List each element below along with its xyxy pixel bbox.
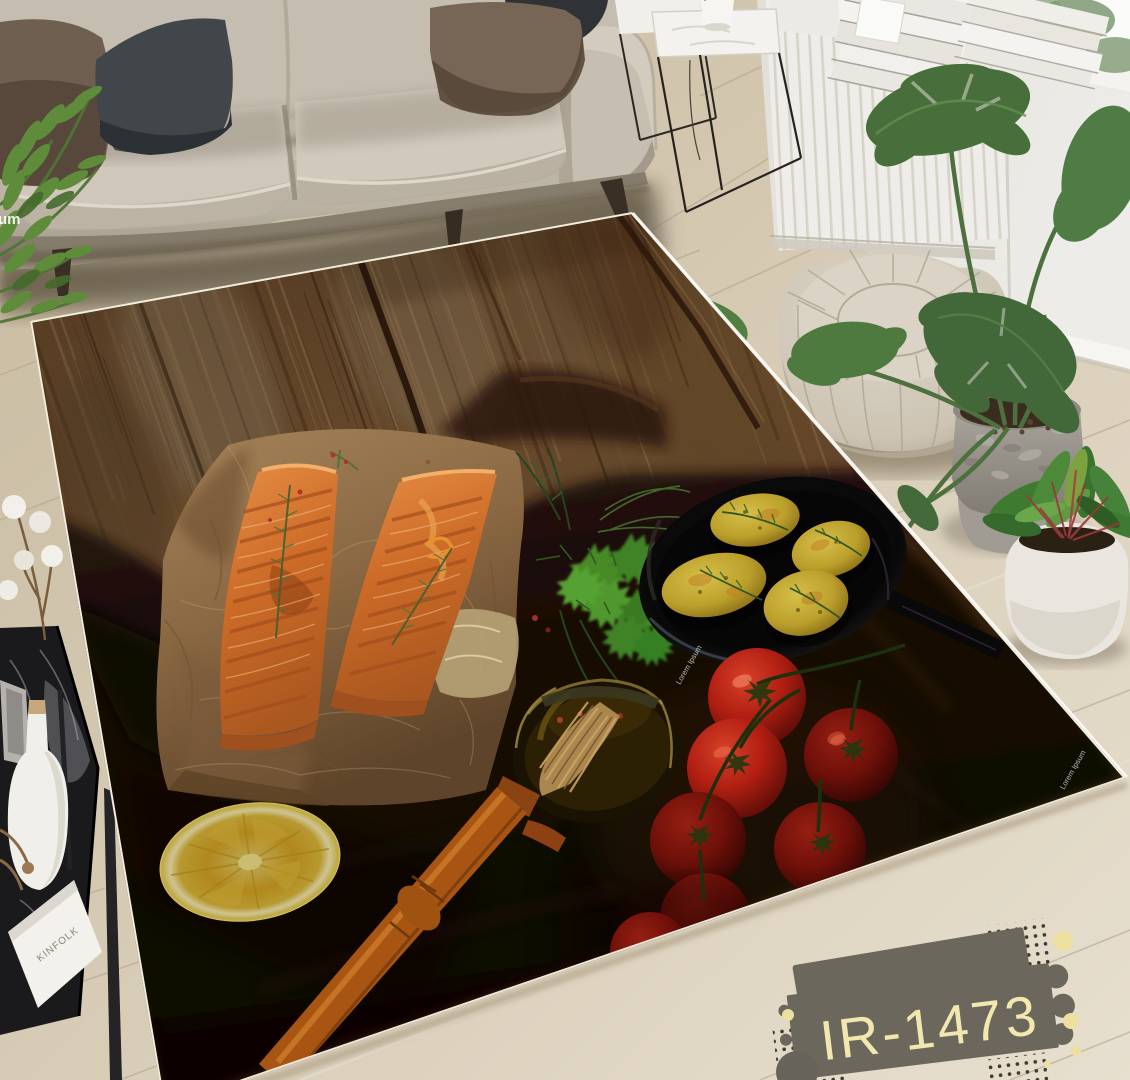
svg-text:um: um [0, 211, 21, 228]
